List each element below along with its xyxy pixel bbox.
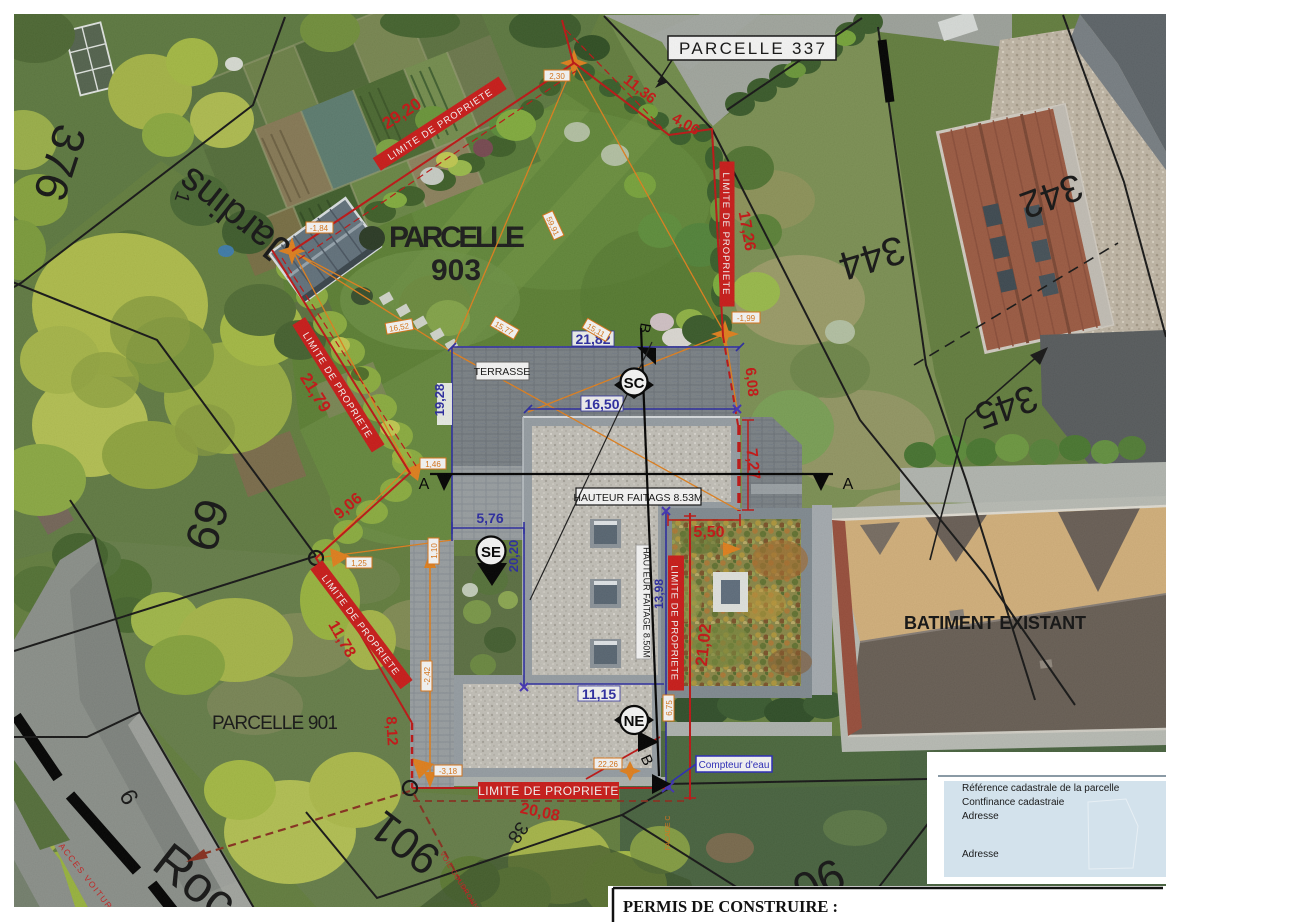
- svg-text:Adresse: Adresse: [962, 849, 999, 860]
- svg-text:Contfinance cadastraie: Contfinance cadastraie: [962, 797, 1065, 808]
- svg-text:PERMIS DE CONSTRUIRE :: PERMIS DE CONSTRUIRE :: [623, 897, 838, 916]
- svg-text:Référence cadastrale de la par: Référence cadastrale de la parcelle: [962, 783, 1120, 794]
- svg-text:Adresse: Adresse: [962, 811, 999, 822]
